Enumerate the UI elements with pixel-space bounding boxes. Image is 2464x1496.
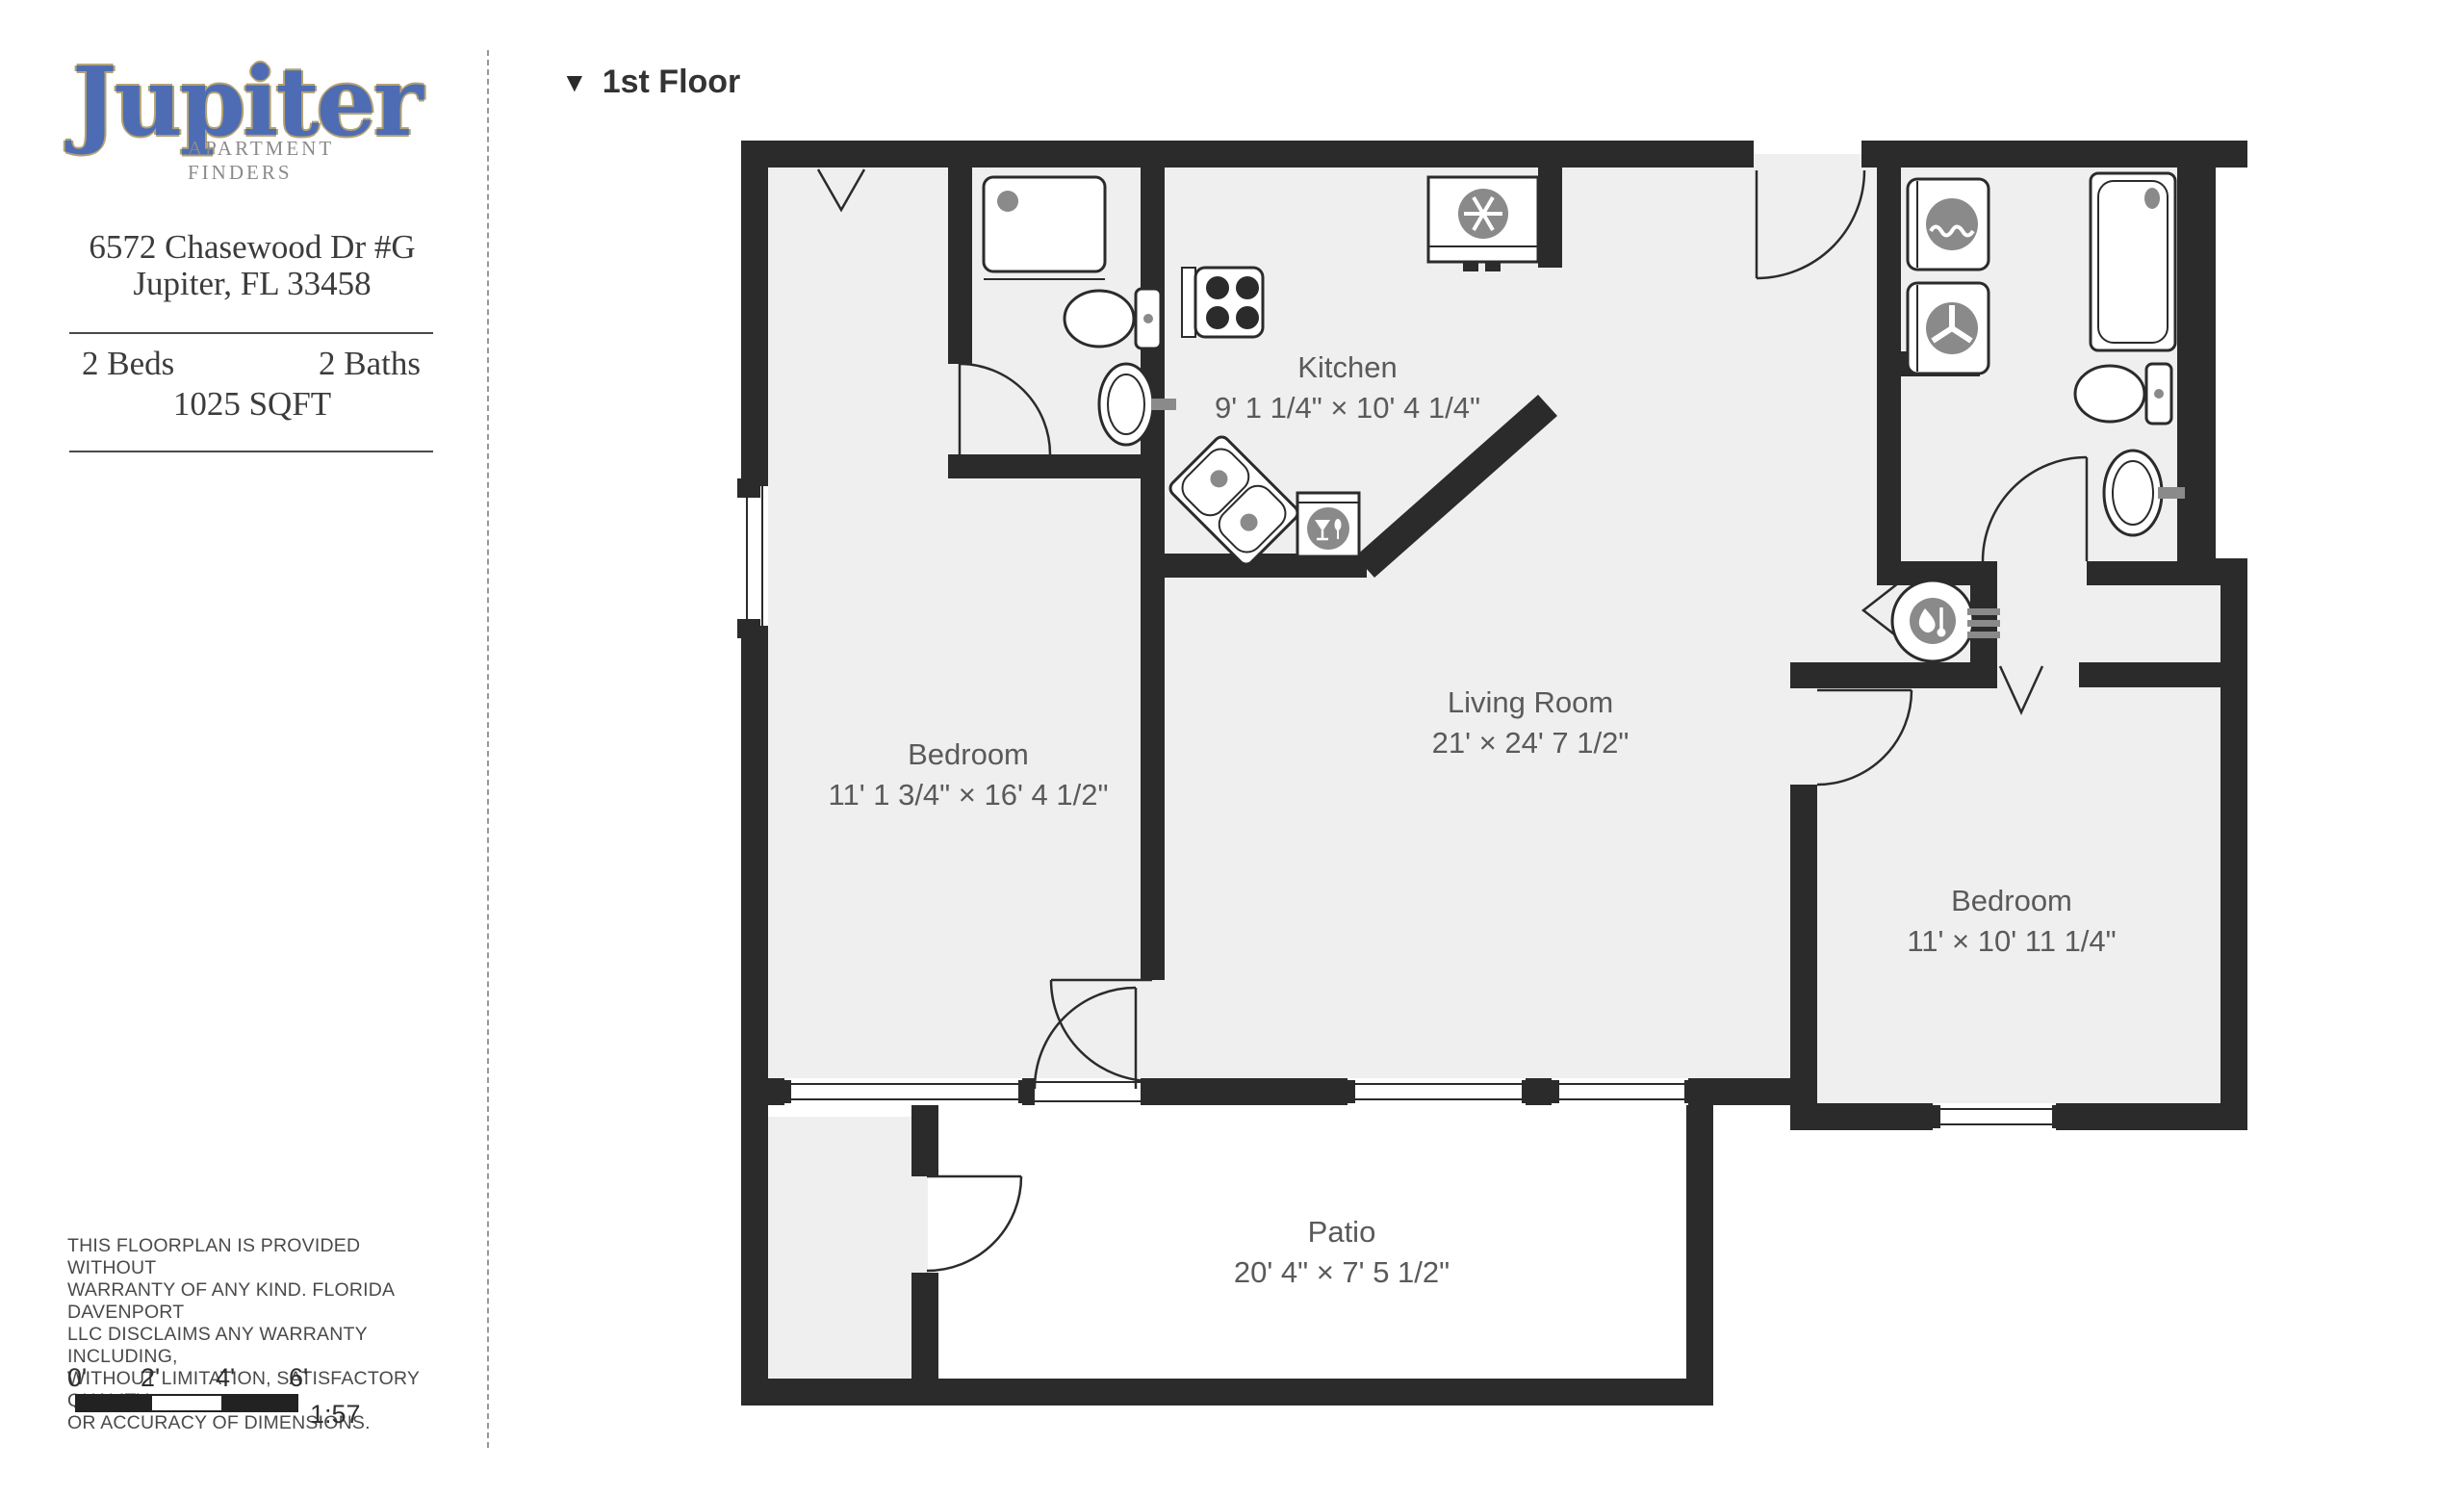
bedroom2-dimensions: 11' × 10' 11 1/4" bbox=[1907, 924, 2116, 958]
washer-icon bbox=[1908, 179, 1989, 270]
stove-icon bbox=[1182, 268, 1263, 337]
kitchen-dimensions: 9' 1 1/4" × 10' 4 1/4" bbox=[1215, 391, 1480, 425]
dishwasher-icon bbox=[1297, 493, 1359, 556]
toilet-icon bbox=[1065, 289, 1161, 348]
floorplan-drawing: Kitchen 9' 1 1/4" × 10' 4 1/4" Living Ro… bbox=[0, 0, 2464, 1496]
bathtub-icon bbox=[2091, 173, 2175, 350]
window-bedroom2-bottom bbox=[1921, 1103, 2071, 1130]
patio-dimensions: 20' 4" × 7' 5 1/2" bbox=[1234, 1255, 1450, 1289]
shower-icon bbox=[984, 177, 1105, 279]
window-bedroom1-left bbox=[737, 478, 768, 638]
toilet-icon bbox=[2075, 364, 2171, 424]
patio-door-threshold bbox=[1035, 1078, 1141, 1105]
refrigerator-icon bbox=[1428, 177, 1538, 271]
patio-label: Patio bbox=[1308, 1215, 1376, 1249]
living-room-dimensions: 21' × 24' 7 1/2" bbox=[1432, 726, 1630, 760]
bedroom2-label: Bedroom bbox=[1951, 884, 2072, 917]
kitchen-label: Kitchen bbox=[1297, 350, 1397, 384]
window-patio-left bbox=[772, 1078, 1038, 1105]
door-storage-closet bbox=[927, 1176, 1021, 1271]
floorplan-page: Jupiter APARTMENT FINDERS 6572 Chasewood… bbox=[0, 0, 2464, 1496]
dryer-icon bbox=[1908, 283, 1989, 374]
bedroom1-dimensions: 11' 1 3/4" × 16' 4 1/2" bbox=[829, 778, 1109, 812]
living-room-label: Living Room bbox=[1448, 685, 1613, 719]
window-living-patio-1 bbox=[1336, 1078, 1541, 1105]
bedroom1-label: Bedroom bbox=[908, 737, 1029, 771]
window-living-patio-2 bbox=[1540, 1078, 1704, 1105]
